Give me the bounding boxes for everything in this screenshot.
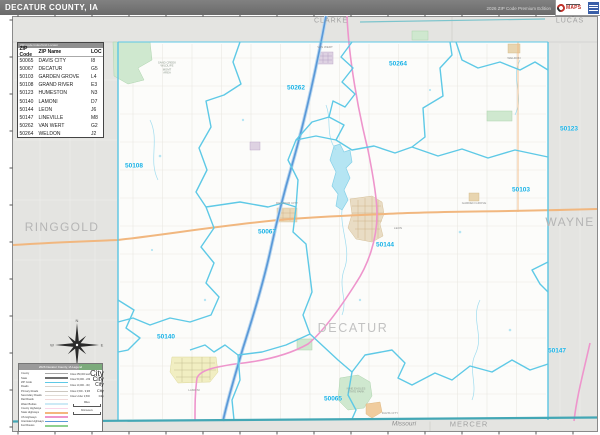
- zip-table-cell: G5: [91, 66, 103, 72]
- legend-item-label: Roads: [21, 385, 45, 388]
- legend-swatch: [45, 377, 68, 379]
- zip-table-col-loc: LOC: [91, 49, 103, 55]
- scalebar-miles: Miles: [70, 401, 104, 408]
- legend-city-label: Cities Under 2,500: [70, 395, 90, 398]
- logo-text-block: MAPS: [566, 4, 587, 11]
- zip-table-row: 50065DAVIS CITYI8: [18, 57, 103, 65]
- zip-table-col-name: ZIP Name: [39, 49, 92, 55]
- zip-table-row: 50123HUMESTONN3: [18, 89, 103, 97]
- legend-item-label: State Highways: [21, 411, 45, 414]
- zip-table-cell: 50065: [18, 58, 39, 64]
- east-county-band: [548, 42, 597, 421]
- zip-table-cell: GRAND RIVER: [39, 82, 92, 88]
- legend-item-label: Water Bodies: [21, 403, 45, 406]
- county-title: DECATUR COUNTY, IA: [5, 3, 98, 12]
- zip-table-cell: 50103: [18, 74, 39, 80]
- zip-table-header: ZIP Code ZIP Name LOC: [18, 48, 103, 57]
- legend-swatch: [45, 391, 68, 392]
- legend-item: Fed Routes: [21, 424, 68, 428]
- zip-table-row: 50264WELDONJ2: [18, 130, 103, 138]
- zip-table-cell: DECATUR: [39, 66, 92, 72]
- legend-body: CountyStateZIP CodeRoadsPrimary RoadsSec…: [19, 370, 102, 429]
- legend-city-sample: City: [99, 395, 104, 398]
- legend-city-row: Cities Under 2,500City: [70, 394, 104, 400]
- zip-table-cell: 50264: [18, 131, 39, 137]
- legend-swatch: [45, 382, 68, 384]
- zip-table-row: 50144LEONJ6: [18, 106, 103, 114]
- scalebar-km: Kilometers: [70, 409, 104, 416]
- legend-city-label: Cities 2,500 - 9,999: [70, 390, 90, 393]
- zip-table-cell: N3: [91, 90, 103, 96]
- zip-table-cell: 50067: [18, 66, 39, 72]
- legend-swatch: [45, 386, 68, 387]
- legend-city-label: Cities 50,000 - 249,999: [70, 378, 90, 381]
- legend-item-label: Secondary Roads: [21, 394, 45, 397]
- legend-city-column: Cities 250,000 and AboveCityCities 50,00…: [68, 372, 104, 428]
- legend-city-label: Cities 250,000 and Above: [70, 373, 90, 376]
- legend-city-label: Cities 10,000 - 49,999: [70, 384, 90, 387]
- zip-table-cell: M8: [91, 115, 103, 121]
- zip-table-cell: 50147: [18, 115, 39, 121]
- zip-table-cell: L4: [91, 74, 103, 80]
- legend-item-label: Fed Routes: [21, 424, 45, 427]
- zip-table-row: 50262VAN WERTG2: [18, 122, 103, 130]
- legend-item-label: ZIP Code: [21, 381, 45, 384]
- zip-table-cell: DAVIS CITY: [39, 58, 92, 64]
- zip-table-cell: LEON: [39, 107, 92, 113]
- map-legend: 2026 Decatur County, IA Legend CountySta…: [18, 363, 103, 432]
- legend-swatch: [45, 425, 68, 427]
- zip-table-cell: G2: [91, 123, 103, 129]
- edition-label: 2026 ZIP Code Premium Edition: [487, 6, 551, 11]
- zip-table-row: 50140LAMONID7: [18, 97, 103, 105]
- zip-table-cell: J6: [91, 107, 103, 113]
- zip-table-cell: 50262: [18, 123, 39, 129]
- logo-brand-text: MAPS: [566, 6, 587, 11]
- legend-swatch: [45, 395, 68, 396]
- legend-swatch: [45, 403, 68, 406]
- legend-item-label: Interstate Highways: [21, 420, 45, 423]
- legend-item-label: Rail Roads: [21, 398, 45, 401]
- zip-table-cell: E3: [91, 82, 103, 88]
- legend-swatch: [45, 421, 68, 423]
- zip-table-cell: 50140: [18, 99, 39, 105]
- legend-swatch: [45, 399, 68, 400]
- legend-swatch: [45, 408, 68, 410]
- zip-table-col-zip: ZIP Code: [18, 46, 39, 58]
- zip-table-rows: 50065DAVIS CITYI850067DECATURG550103GARD…: [18, 57, 103, 138]
- zip-table-row: 50103GARDEN GROVEL4: [18, 73, 103, 81]
- zip-table-row: 50108GRAND RIVERE3: [18, 81, 103, 89]
- compass-n: N: [76, 318, 79, 323]
- legend-item-label: Primary Roads: [21, 390, 45, 393]
- publisher-logo: MAPS: [555, 0, 600, 16]
- zip-table-row: 50147LINEVILLEM8: [18, 114, 103, 122]
- zip-table-cell: D7: [91, 99, 103, 105]
- zip-table-cell: 50108: [18, 82, 39, 88]
- zip-table-cell: GARDEN GROVE: [39, 74, 92, 80]
- zip-table-cell: VAN WERT: [39, 123, 92, 129]
- zip-table-cell: HUMESTON: [39, 90, 92, 96]
- legend-item-label: County Highways: [21, 407, 45, 410]
- legend-swatch: [45, 416, 68, 418]
- legend-item-label: County: [21, 372, 45, 375]
- legend-item-label: US Highways: [21, 416, 45, 419]
- logo-swirl-icon: [555, 2, 566, 13]
- zip-table-cell: J2: [91, 131, 103, 137]
- legend-item-label: State: [21, 377, 45, 380]
- title-bar: DECATUR COUNTY, IA 2026 ZIP Code Premium…: [0, 0, 600, 15]
- zip-table-cell: 50123: [18, 90, 39, 96]
- legend-swatch: [45, 373, 68, 375]
- logo-badge: [588, 2, 599, 14]
- zip-table-cell: 50144: [18, 107, 39, 113]
- zip-table-cell: WELDON: [39, 131, 92, 137]
- compass-w: W: [50, 343, 54, 348]
- compass-e: E: [101, 343, 104, 348]
- zip-table-cell: LINEVILLE: [39, 115, 92, 121]
- zip-table-cell: LAMONI: [39, 99, 92, 105]
- zip-table-cell: I8: [91, 58, 103, 64]
- north-counties-band: [13, 17, 597, 42]
- legend-city-sample: City: [97, 389, 104, 393]
- zip-code-table: ZIP Code Index/Grid Locator ZIP Code ZIP…: [17, 42, 104, 138]
- zip-table-row: 50067DECATURG5: [18, 65, 103, 73]
- map-page: { "header": { "title": "DECATUR COUNTY, …: [0, 0, 600, 435]
- legend-swatch: [45, 412, 68, 414]
- legend-items: CountyStateZIP CodeRoadsPrimary RoadsSec…: [21, 372, 68, 428]
